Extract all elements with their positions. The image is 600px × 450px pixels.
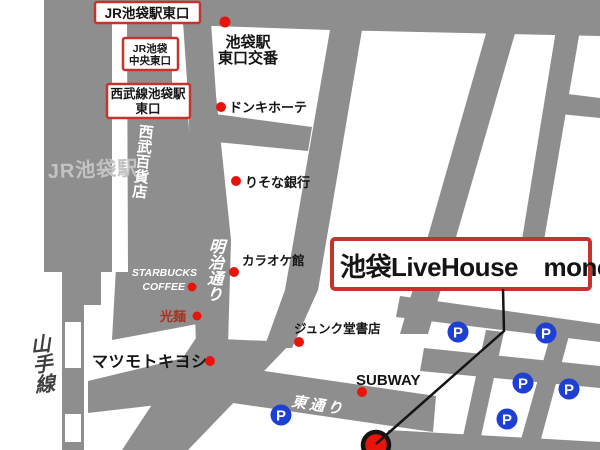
- label-donki: ドンキホーテ: [229, 100, 307, 115]
- label-starbucks-line1: STARBUCKS: [132, 267, 197, 279]
- parking-icon: P: [513, 373, 534, 394]
- road-grid-bottom: [384, 430, 600, 450]
- poi-dot-karaoke: [229, 267, 239, 277]
- parking-icon: P: [559, 379, 580, 400]
- exit-label-seibu-east-line2: 東口: [135, 101, 160, 116]
- parking-letter: P: [541, 326, 551, 343]
- label-starbucks-line2: COFFEE: [142, 281, 186, 293]
- exit-label-seibu-east-line1: 西武線池袋駅: [110, 86, 186, 101]
- parking-letter: P: [502, 412, 512, 429]
- road-label-meiji-dori: 明治通り: [203, 238, 225, 303]
- poi-dot-koban: [220, 17, 231, 28]
- label-karaoke: カラオケ館: [242, 253, 305, 268]
- parking-icon: P: [536, 323, 557, 344]
- exit-label-jr-central-east-line1: JR池袋: [133, 42, 168, 55]
- poi-dot-junkudo: [294, 337, 304, 347]
- railway-gap-2: [65, 414, 81, 442]
- road-grid-vertical-1: [460, 330, 504, 450]
- poi-dot-subway: [357, 387, 367, 397]
- parking-icon: P: [271, 405, 292, 426]
- label-koban-line2: 東口交番: [218, 49, 279, 67]
- parking-icon: P: [497, 409, 518, 430]
- label-matsumotokiyoshi: マツモトキヨシ: [92, 354, 208, 371]
- parking-letter: P: [564, 382, 574, 399]
- road-diagonal-3: [520, 30, 580, 252]
- parking-letter: P: [453, 325, 463, 342]
- building-label-jr-station: JR池袋駅: [47, 156, 138, 183]
- railway-gap-1: [65, 322, 81, 368]
- poi-dot-matsumotokiyoshi: [205, 356, 215, 366]
- label-junkudo: ジュンク堂書店: [294, 321, 381, 336]
- poi-dot-komen: [193, 312, 202, 321]
- exit-label-jr-central-east-line2: 中央東口: [129, 54, 171, 67]
- poi-dot-donki: [216, 102, 226, 112]
- parking-icon: P: [448, 322, 469, 343]
- venue-name: 池袋LiveHouse mono: [340, 252, 600, 282]
- road-label-yamanote-line: 山手線: [26, 333, 56, 395]
- parking-letter: P: [518, 376, 528, 393]
- label-komen: 光麺: [159, 309, 186, 324]
- exit-label-jr-east: JR池袋駅東口: [105, 5, 190, 21]
- road-koban-side: [206, 113, 312, 151]
- poi-dot-starbucks: [188, 283, 197, 292]
- poi-dot-risona: [231, 176, 241, 186]
- access-map: JR池袋駅 西武百貨店 明治通り 山手線 東通り 池袋駅 東口交番 ドンキホーテ…: [0, 0, 600, 450]
- parking-letter: P: [276, 408, 286, 425]
- label-risona-bank: りそな銀行: [245, 175, 310, 190]
- label-koban-line1: 池袋駅: [225, 33, 271, 51]
- label-subway: SUBWAY: [356, 372, 420, 389]
